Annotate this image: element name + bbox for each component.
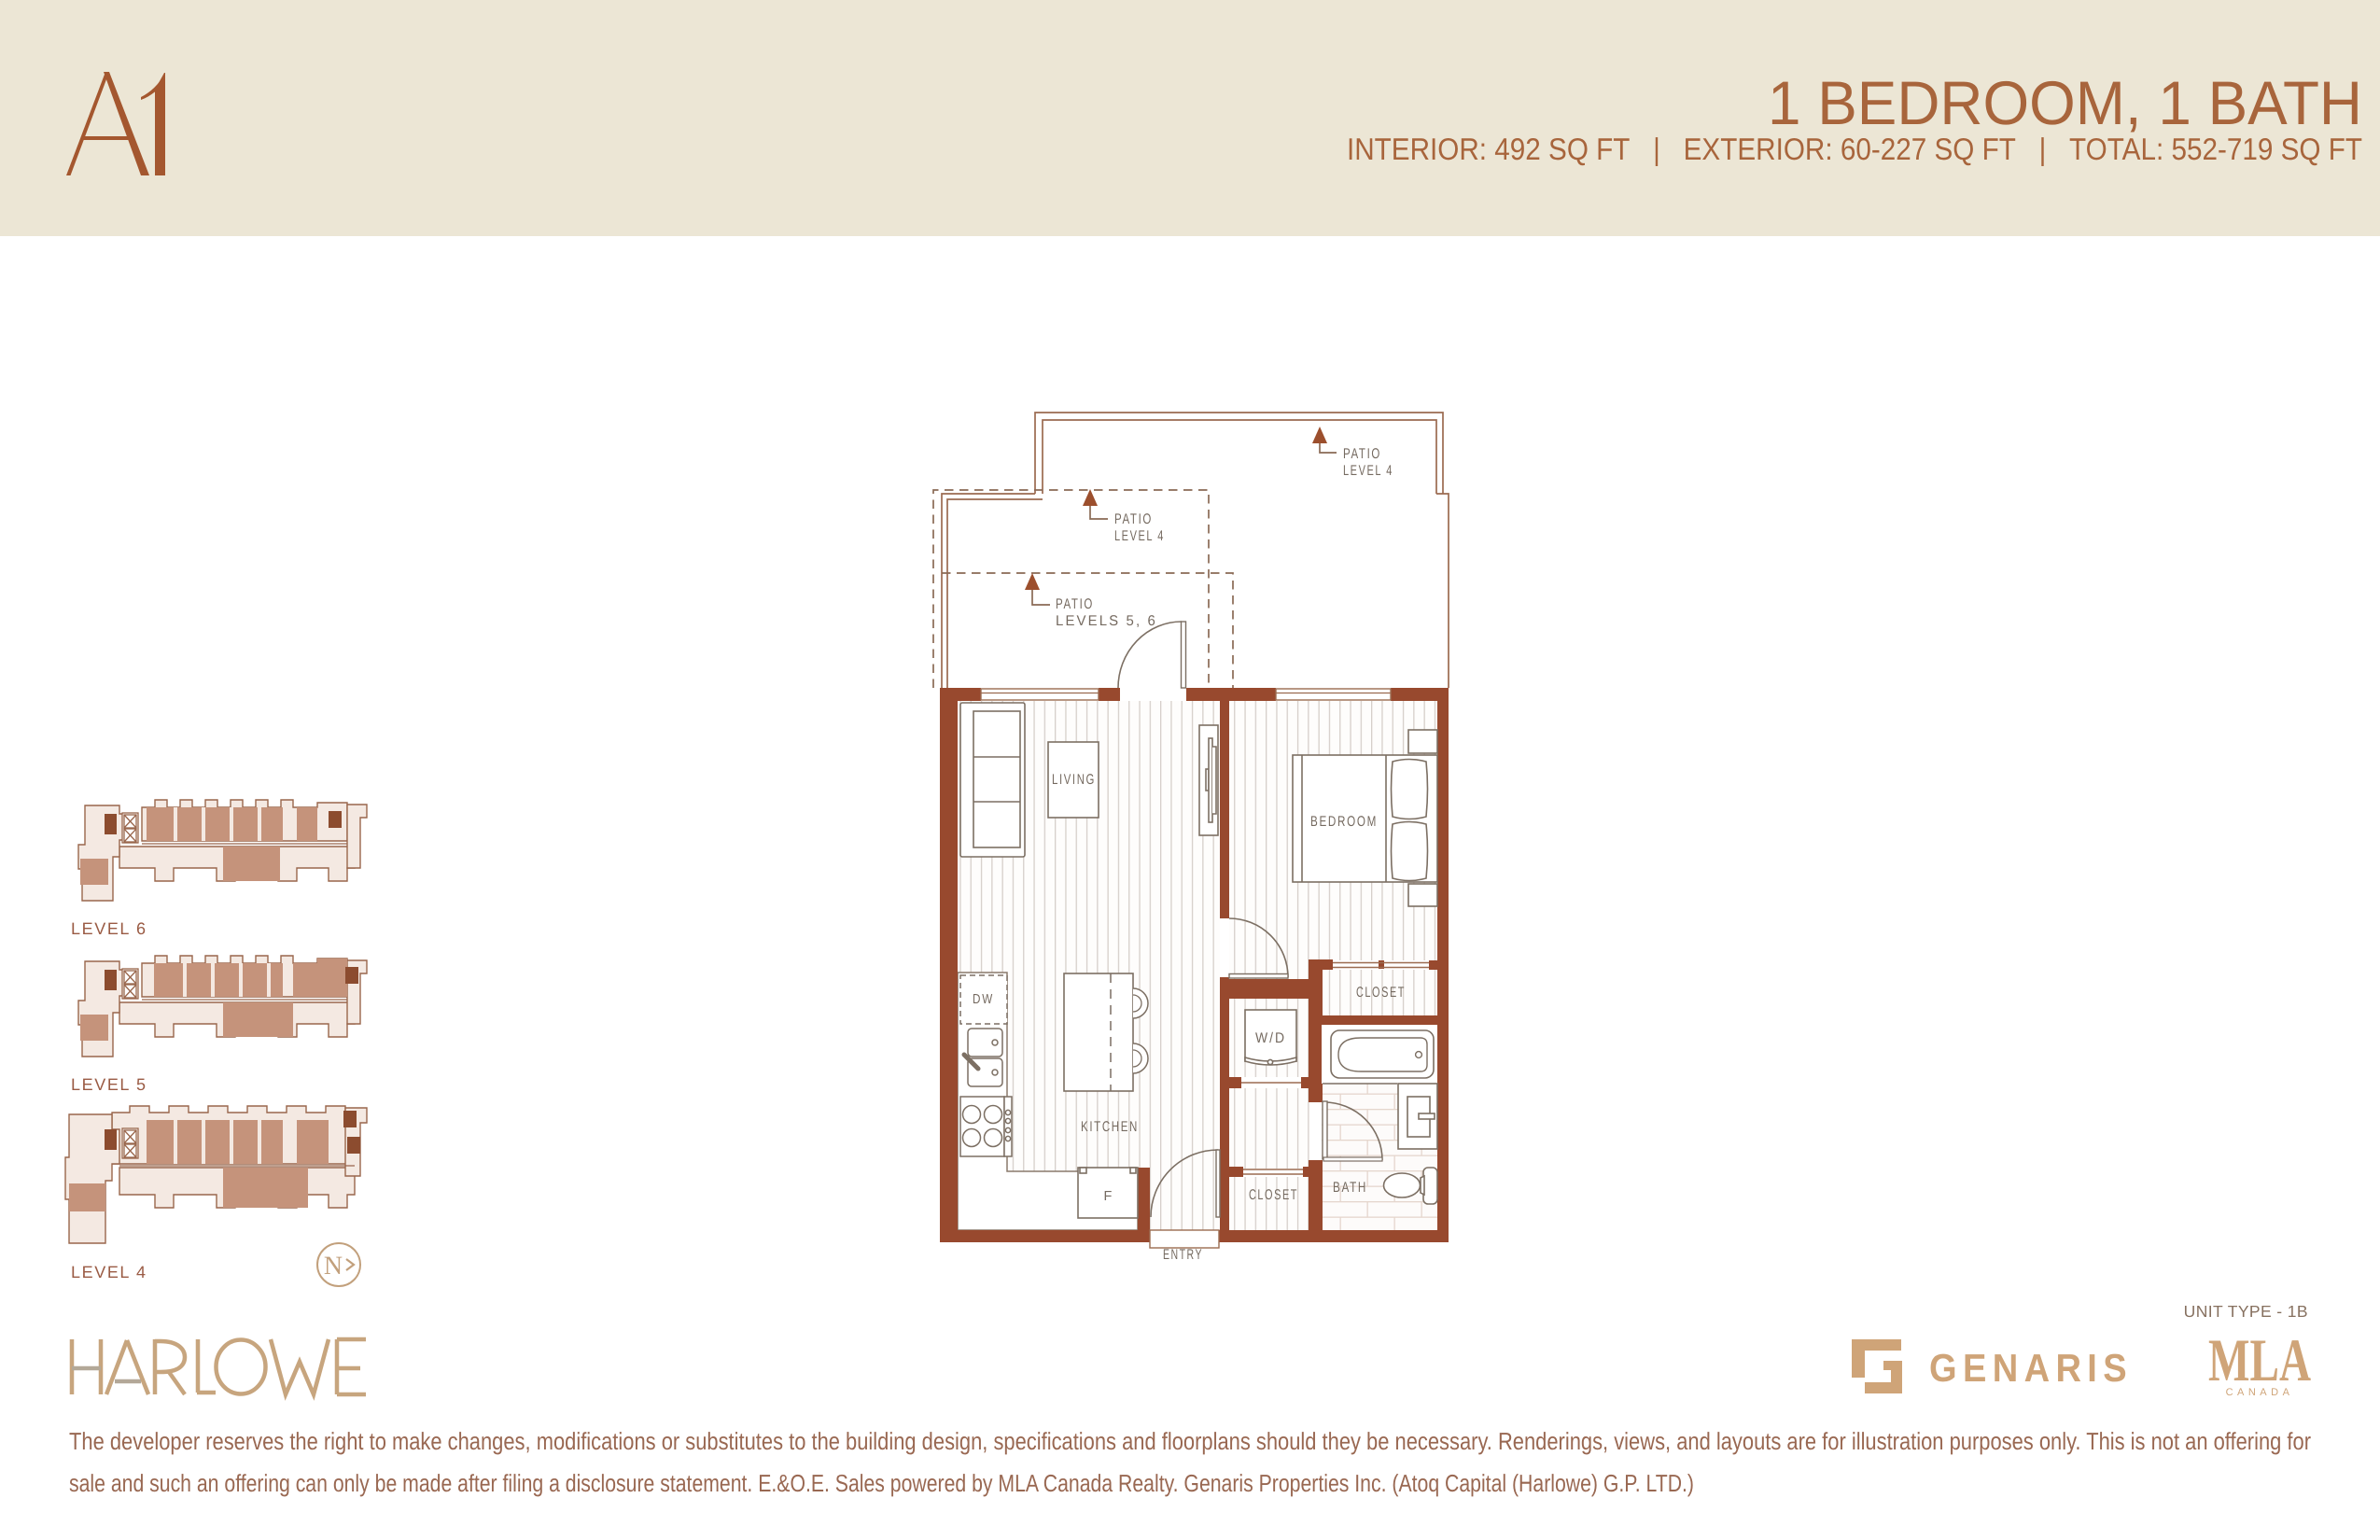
svg-text:GENARIS: GENARIS [1929,1346,2133,1390]
svg-text:LEVEL 4: LEVEL 4 [1343,463,1393,479]
svg-text:BATH: BATH [1333,1180,1367,1196]
svg-text:CLOSET: CLOSET [1356,985,1406,1001]
svg-text:F: F [1103,1189,1113,1204]
svg-text:LEVEL 4: LEVEL 4 [1114,528,1165,544]
svg-text:INTERIOR: 492 SQ FT | EXTE: INTERIOR: 492 SQ FT | EXTERIOR: 60-227 S… [1347,132,2362,166]
svg-text:PATIO: PATIO [1343,446,1381,462]
svg-text:BEDROOM: BEDROOM [1310,814,1378,830]
svg-text:LEVELS 5, 6: LEVELS 5, 6 [1056,613,1157,629]
svg-text:CLOSET: CLOSET [1249,1187,1298,1203]
svg-text:PATIO: PATIO [1114,511,1153,527]
svg-text:CANADA: CANADA [2226,1387,2294,1398]
svg-text:W/D: W/D [1255,1030,1286,1046]
svg-text:ENTRY: ENTRY [1163,1247,1203,1263]
svg-text:N: N [324,1252,343,1281]
svg-text:sale and such an offering can: sale and such an offering can only be ma… [69,1469,1694,1497]
svg-text:LEVEL 5: LEVEL 5 [71,1075,147,1094]
svg-text:MLA: MLA [2208,1327,2311,1394]
svg-text:KITCHEN: KITCHEN [1081,1119,1139,1135]
svg-text:LEVEL 6: LEVEL 6 [71,919,147,938]
svg-text:The developer reserves the rig: The developer reserves the right to make… [69,1427,2311,1455]
svg-text:LIVING: LIVING [1052,772,1096,788]
svg-text:1 BEDROOM, 1 BATH: 1 BEDROOM, 1 BATH [1768,68,2362,137]
svg-text:UNIT TYPE - 1B: UNIT TYPE - 1B [2184,1302,2308,1321]
svg-text:DW: DW [973,992,994,1007]
svg-text:LEVEL 4: LEVEL 4 [71,1263,147,1281]
svg-text:PATIO: PATIO [1056,596,1094,612]
